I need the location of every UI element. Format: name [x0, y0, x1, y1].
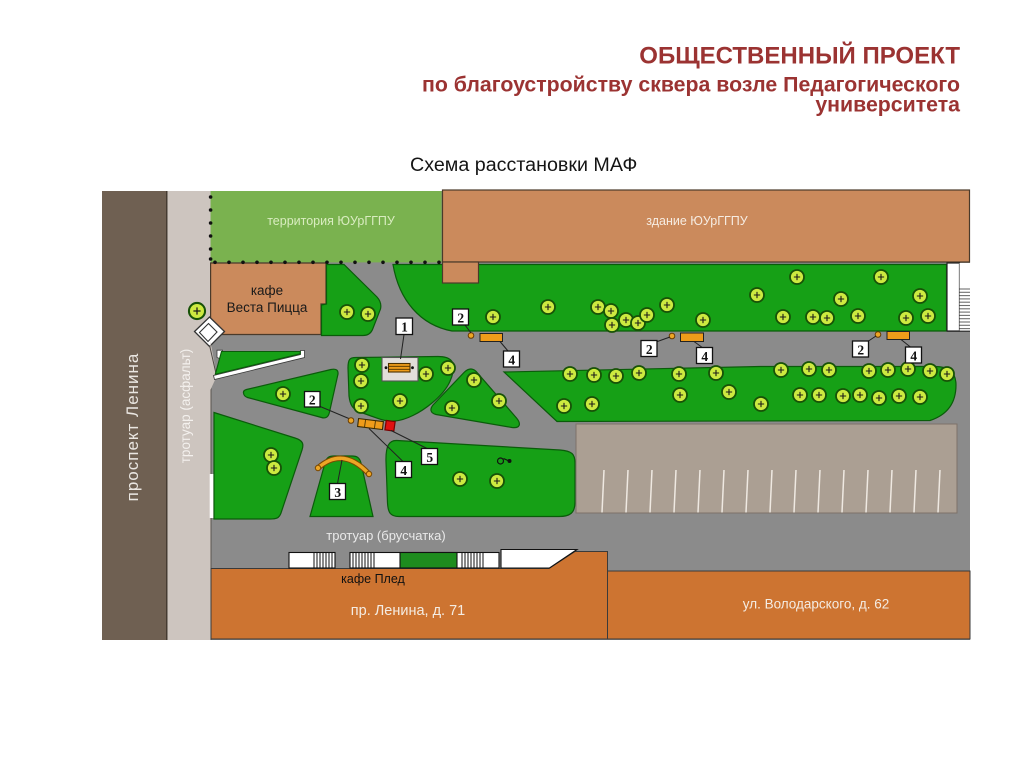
- svg-text:ул. Володарского, д. 62: ул. Володарского, д. 62: [743, 597, 890, 612]
- svg-text:5: 5: [426, 450, 433, 465]
- svg-text:Веста Пицца: Веста Пицца: [227, 300, 308, 315]
- svg-text:4: 4: [701, 349, 708, 364]
- svg-text:тротуар (брусчатка): тротуар (брусчатка): [326, 528, 445, 543]
- svg-text:2: 2: [309, 392, 316, 407]
- svg-text:ОБЩЕСТВЕННЫЙ ПРОЕКТ: ОБЩЕСТВЕННЫЙ ПРОЕКТ: [639, 42, 960, 70]
- svg-text:2: 2: [457, 310, 464, 325]
- svg-text:2: 2: [857, 342, 864, 357]
- svg-text:тротуар (асфальт): тротуар (асфальт): [178, 349, 193, 464]
- svg-text:4: 4: [400, 463, 407, 478]
- svg-text:университета: университета: [815, 93, 960, 117]
- svg-text:проспект Ленина: проспект Ленина: [123, 353, 142, 502]
- svg-text:Схема расстановки МАФ: Схема расстановки МАФ: [410, 154, 637, 176]
- svg-text:1: 1: [401, 320, 408, 335]
- svg-text:пр. Ленина, д. 71: пр. Ленина, д. 71: [351, 603, 465, 619]
- svg-text:3: 3: [334, 485, 341, 500]
- svg-text:4: 4: [910, 348, 917, 363]
- svg-text:кафе: кафе: [251, 283, 283, 298]
- svg-text:2: 2: [646, 342, 653, 357]
- svg-text:территория ЮУрГГПУ: территория ЮУрГГПУ: [267, 214, 395, 228]
- svg-text:здание ЮУрГГПУ: здание ЮУрГГПУ: [646, 214, 747, 228]
- svg-text:4: 4: [508, 352, 515, 367]
- svg-text:кафе Плед: кафе Плед: [341, 572, 405, 586]
